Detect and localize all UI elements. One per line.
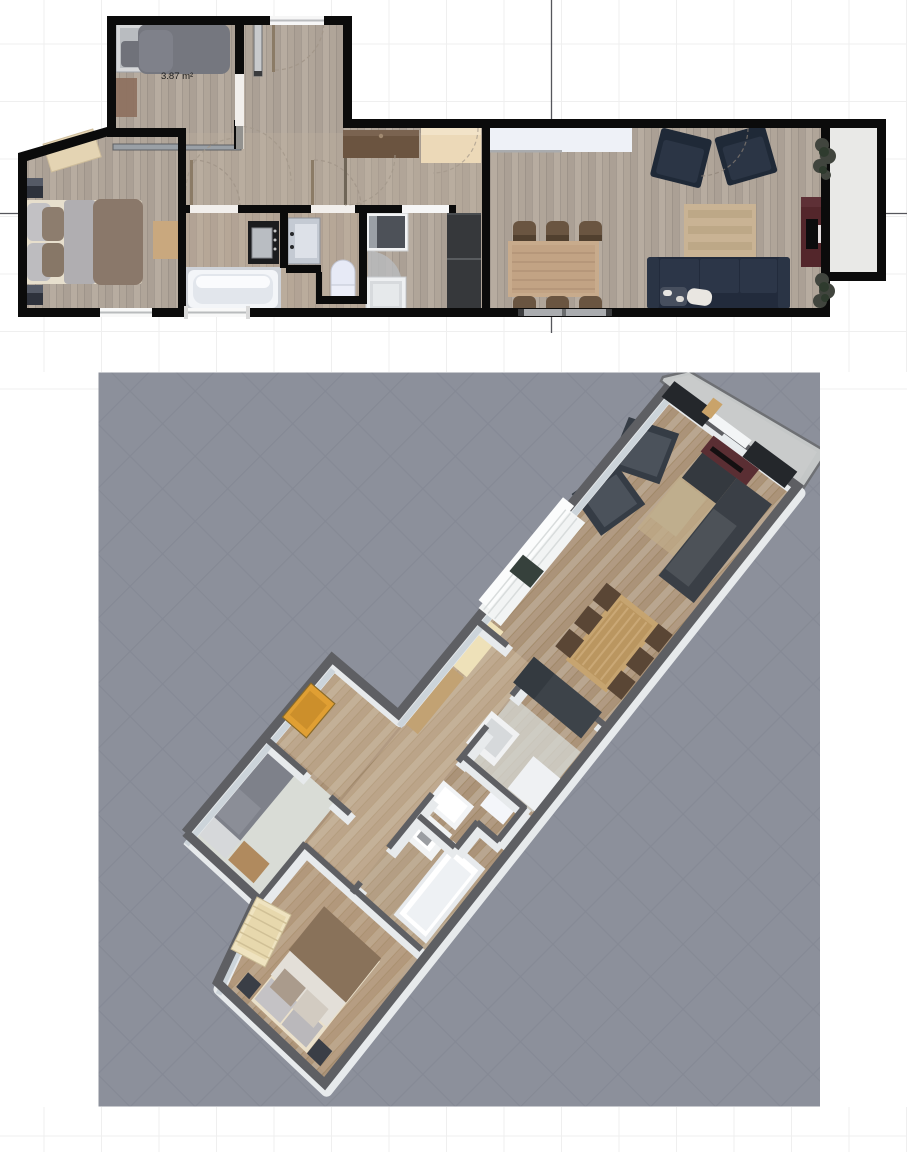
svg-text:3.87 m²: 3.87 m²	[161, 71, 193, 82]
